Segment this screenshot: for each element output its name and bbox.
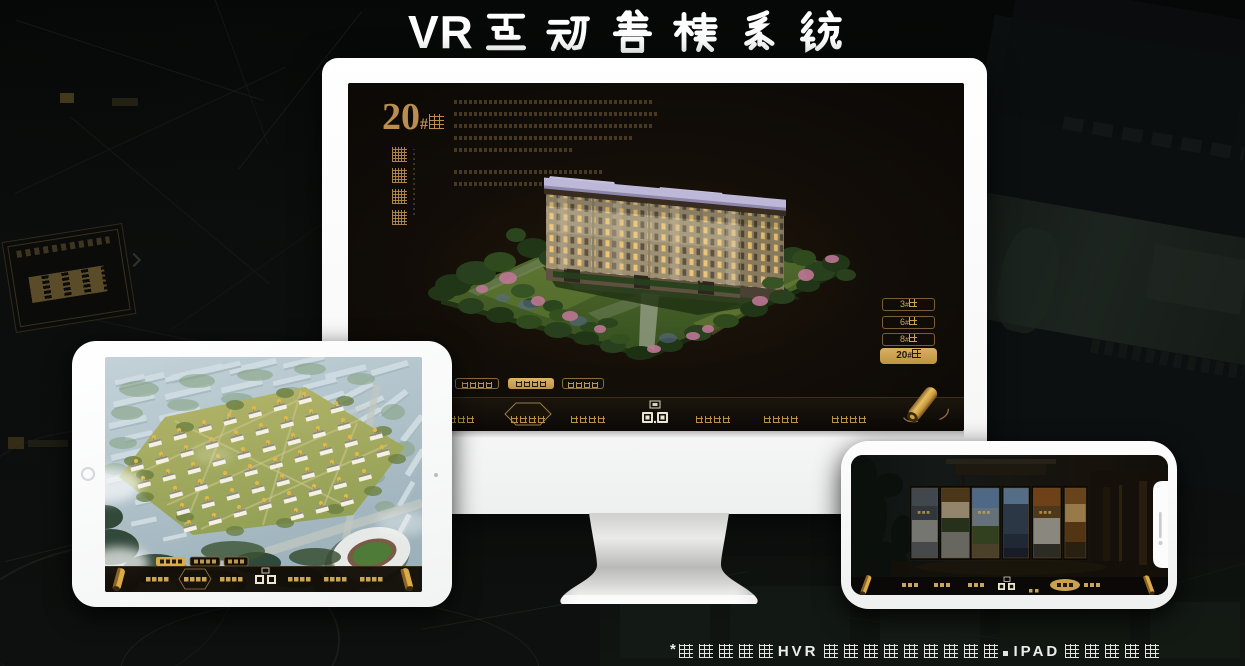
svg-text:VR: VR [408, 6, 474, 56]
